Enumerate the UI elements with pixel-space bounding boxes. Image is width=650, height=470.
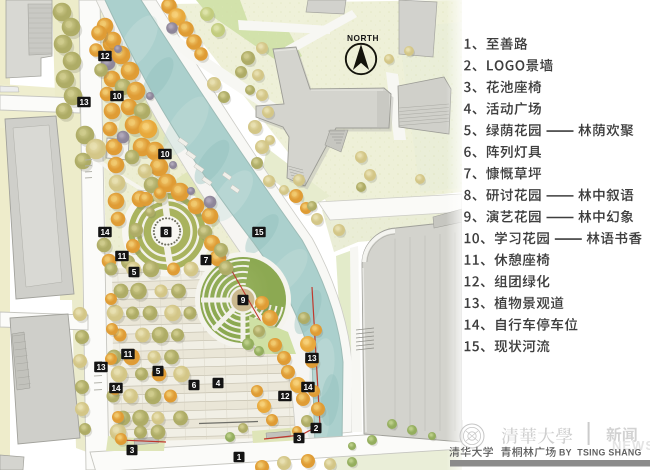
svg-text:13: 13	[96, 363, 106, 372]
svg-text:7: 7	[204, 256, 209, 265]
svg-text:11: 11	[124, 350, 133, 359]
svg-text:1: 1	[237, 453, 242, 462]
svg-text:11: 11	[118, 252, 127, 261]
svg-text:BY TSING SHANG: BY TSING SHANG	[559, 448, 642, 458]
svg-text:13: 13	[307, 354, 317, 363]
svg-text:6: 6	[192, 381, 197, 390]
svg-text:NORTH: NORTH	[347, 33, 379, 43]
svg-text:15: 15	[254, 228, 264, 237]
svg-text:14: 14	[111, 384, 121, 393]
svg-text:10: 10	[112, 92, 122, 101]
svg-text:3: 3	[297, 434, 302, 443]
svg-text:2: 2	[314, 424, 319, 433]
svg-text:8: 8	[164, 228, 169, 237]
svg-text:5: 5	[156, 367, 161, 376]
svg-text:4: 4	[216, 379, 221, 388]
svg-text:12: 12	[100, 52, 110, 61]
svg-text:3: 3	[130, 446, 135, 455]
svg-text:13: 13	[79, 98, 89, 107]
svg-text:14: 14	[100, 228, 110, 237]
svg-text:14: 14	[303, 383, 313, 392]
svg-text:5: 5	[132, 268, 137, 277]
svg-text:9: 9	[241, 296, 246, 305]
svg-text:10: 10	[160, 150, 170, 159]
svg-text:12: 12	[280, 392, 290, 401]
